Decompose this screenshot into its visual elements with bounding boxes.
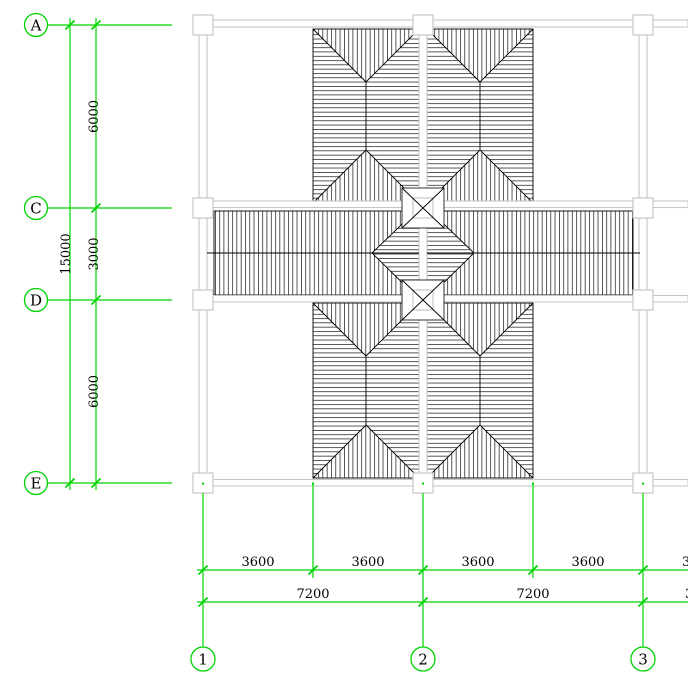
hip-roof-panel: [313, 29, 419, 203]
column: [633, 15, 653, 35]
dim-bottom-3600: 3600: [351, 555, 384, 570]
extension-origin-dot: [422, 483, 424, 485]
column: [633, 198, 653, 218]
dim-bottom-7200: 7200: [296, 587, 329, 602]
column: [193, 198, 213, 218]
beam-vertical: [639, 25, 647, 483]
column: [193, 15, 213, 35]
column: [413, 15, 433, 35]
col-axis-2: 2: [418, 651, 428, 669]
dim-bottom-3600: 3600: [571, 555, 604, 570]
dim-overall-height: 15000: [59, 233, 74, 274]
dim-bottom-3600: 3600: [241, 555, 274, 570]
hip-roof-panel: [427, 29, 533, 203]
beam-horizontal: [195, 480, 688, 487]
dim-bottom-3600: 3600: [461, 555, 494, 570]
beam-horizontal: [195, 20, 688, 27]
roof-plan-svg: ACDE150006000300060003600360036003600360…: [0, 0, 688, 693]
row-axis-E: E: [31, 475, 42, 493]
hip-roof-panel: [427, 303, 533, 478]
beam-vertical: [199, 25, 207, 483]
extension-origin-dot: [312, 483, 314, 485]
row-axis-A: A: [30, 17, 42, 35]
dim-row-segment: 6000: [87, 375, 102, 408]
row-axis-C: C: [30, 200, 41, 218]
extension-origin-dot: [202, 483, 204, 485]
extension-origin-dot: [642, 483, 644, 485]
column: [633, 290, 653, 310]
roof-plan-drawing[interactable]: ACDE150006000300060003600360036003600360…: [0, 0, 688, 693]
dim-bottom-7200: 7200: [516, 587, 549, 602]
beam-vertical: [419, 25, 427, 483]
dim-row-segment: 6000: [87, 100, 102, 133]
row-axis-D: D: [30, 292, 42, 310]
extension-origin-dot: [532, 483, 534, 485]
hip-roof-panel: [313, 303, 419, 478]
col-axis-1: 1: [198, 651, 208, 669]
column: [193, 290, 213, 310]
dim-row-segment: 3000: [87, 237, 102, 270]
dim-bottom-partial: 3600: [682, 555, 688, 570]
col-axis-3: 3: [638, 651, 648, 669]
